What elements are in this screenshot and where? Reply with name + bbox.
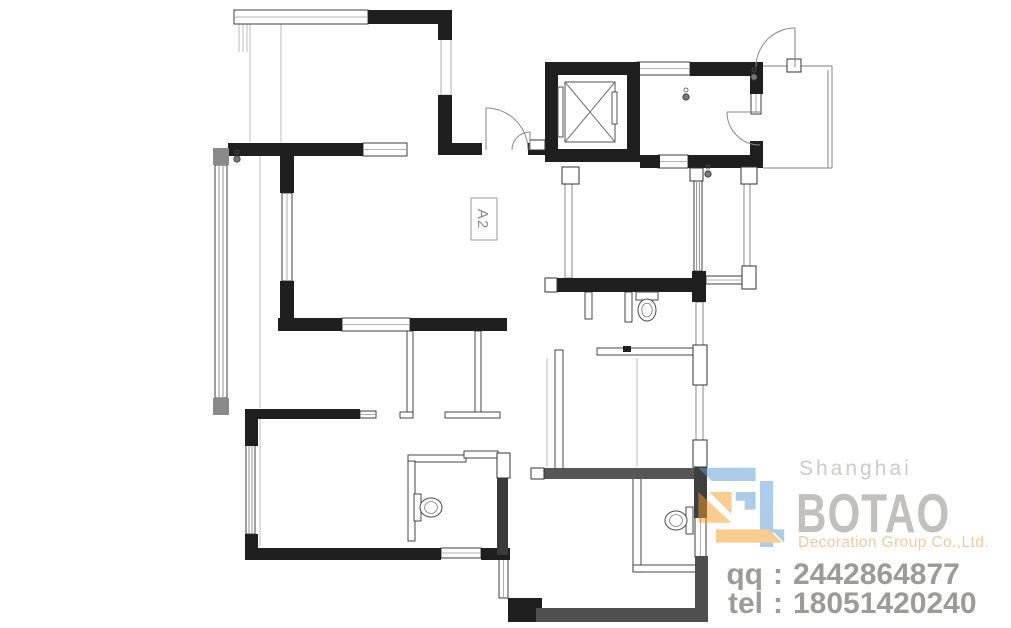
logo-polygon: [736, 492, 756, 510]
brand-location: Shanghai: [799, 457, 912, 481]
tel-colon: :: [763, 589, 793, 619]
qq-colon: :: [763, 560, 793, 590]
tel-contact-line: tel : 18051420240: [688, 589, 977, 619]
brand-subtitle: Decoration Group Co.,Ltd.: [798, 534, 989, 552]
logo-polygon: [698, 468, 755, 481]
qq-label: qq: [688, 560, 763, 590]
qq-contact-line: qq : 2442864877: [688, 560, 960, 590]
tel-label: tel: [688, 589, 763, 619]
floor-plan: A2 Shanghai BOTAO Decoration Group Co.,L…: [0, 0, 1011, 628]
botao-logo-shapes: [698, 468, 784, 547]
tel-number: 18051420240: [793, 589, 977, 619]
qq-number: 2442864877: [793, 560, 960, 590]
